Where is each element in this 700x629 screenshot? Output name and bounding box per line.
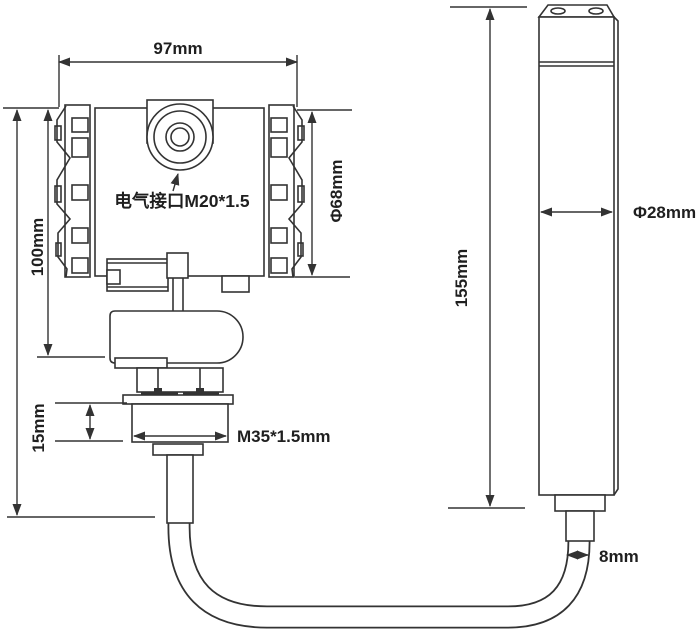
dim-label-cable-diameter: 8mm bbox=[599, 547, 639, 566]
dimension-drawing: 97mm 100mm Φ68mm 电气接口M20*1.5 15mm M35*1.… bbox=[0, 0, 700, 629]
bolt-head-left bbox=[154, 388, 162, 392]
probe-bottom-step bbox=[555, 495, 605, 511]
dim-label-housing-diameter: Φ68mm bbox=[327, 159, 346, 222]
display-circles bbox=[147, 104, 213, 170]
label-electrical-port: 电气接口M20*1.5 bbox=[114, 191, 249, 211]
probe-body bbox=[539, 17, 614, 495]
right-side-cover bbox=[269, 105, 304, 277]
sensor-oval-body bbox=[110, 311, 243, 368]
cable-stem bbox=[167, 455, 193, 523]
left-side-cover bbox=[55, 105, 90, 277]
dimension-housing-width: 97mm bbox=[59, 39, 297, 107]
flange-plate bbox=[123, 395, 233, 404]
probe bbox=[539, 5, 618, 541]
process-connection bbox=[123, 368, 233, 523]
dimension-probe-length: 155mm bbox=[448, 7, 527, 508]
dim-label-housing-width: 97mm bbox=[153, 39, 202, 58]
transmitter-housing bbox=[55, 100, 304, 523]
bolt-head-right bbox=[196, 388, 204, 392]
drawing-svg: 97mm 100mm Φ68mm 电气接口M20*1.5 15mm M35*1.… bbox=[0, 0, 700, 629]
probe-cable-gland bbox=[566, 511, 594, 541]
dim-label-thread-height: 15mm bbox=[29, 403, 48, 452]
dim-label-probe-length: 155mm bbox=[452, 249, 471, 308]
connection-cable bbox=[179, 514, 579, 617]
dim-label-probe-diameter: Φ28mm bbox=[633, 203, 696, 222]
collar bbox=[153, 444, 203, 455]
dim-label-housing-height: 100mm bbox=[28, 218, 47, 277]
dimension-thread-height: 15mm bbox=[29, 403, 127, 453]
dim-label-thread-spec: M35*1.5mm bbox=[237, 427, 331, 446]
